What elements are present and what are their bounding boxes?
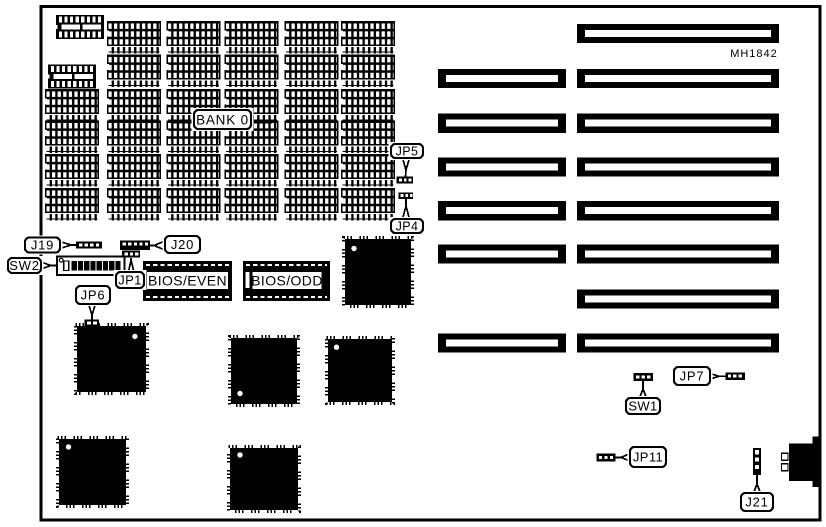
svg-text:MH1842: MH1842	[730, 48, 778, 60]
svg-text:J21: J21	[745, 495, 768, 510]
svg-text:SW2: SW2	[9, 258, 40, 273]
svg-text:JP4: JP4	[396, 220, 419, 234]
svg-text:J20: J20	[171, 237, 194, 252]
svg-text:BIOS/ODD: BIOS/ODD	[251, 273, 323, 289]
svg-text:JP1: JP1	[118, 273, 142, 288]
svg-text:JP5: JP5	[396, 145, 419, 159]
svg-text:JP11: JP11	[633, 450, 663, 465]
svg-text:BIOS/EVEN: BIOS/EVEN	[148, 273, 227, 289]
svg-text:JP6: JP6	[81, 288, 106, 303]
svg-text:JP7: JP7	[680, 369, 705, 384]
svg-text:BANK 0: BANK 0	[196, 112, 249, 127]
svg-text:SW1: SW1	[628, 399, 657, 414]
svg-text:J19: J19	[31, 238, 54, 253]
